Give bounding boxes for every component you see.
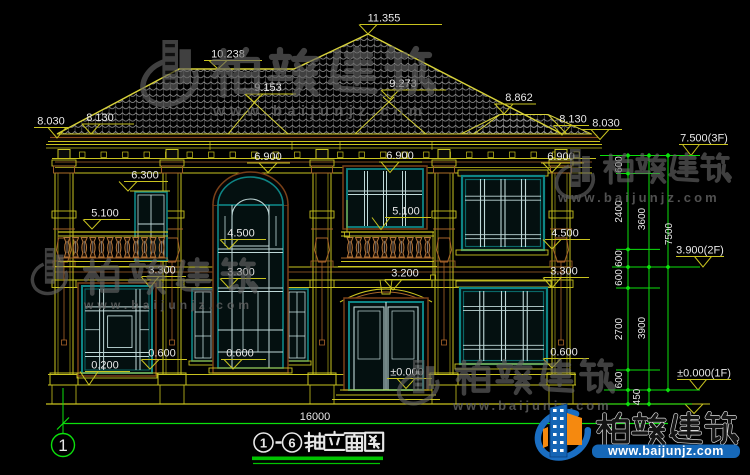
svg-text:7500: 7500 [664,222,675,245]
svg-text:8.130: 8.130 [559,114,587,126]
svg-text:www.baijunjz.com: www.baijunjz.com [452,398,612,413]
svg-text:5.100: 5.100 [392,206,420,218]
svg-text:4.500: 4.500 [227,228,255,240]
svg-text:8.862: 8.862 [505,92,533,104]
svg-text:1: 1 [58,436,67,455]
svg-text:2700: 2700 [614,317,625,340]
svg-text:8.030: 8.030 [37,116,65,128]
svg-text:3600: 3600 [637,207,648,230]
svg-text:www.baijunjz.com: www.baijunjz.com [557,190,720,205]
svg-text:0.200: 0.200 [91,360,119,372]
svg-text:±0.000(1F): ±0.000(1F) [677,368,731,380]
svg-text:4.500: 4.500 [551,228,579,240]
svg-text:www.baijunjz.com: www.baijunjz.com [607,444,724,458]
svg-text:8.130: 8.130 [86,112,114,124]
svg-text:6.300: 6.300 [131,170,159,182]
svg-text:7.500(3F): 7.500(3F) [680,133,728,145]
svg-text:8.030: 8.030 [592,118,620,130]
svg-text:6: 6 [288,436,295,451]
svg-text:www.baijunjz.com: www.baijunjz.com [212,103,427,120]
svg-text:3.900(2F): 3.900(2F) [676,245,724,257]
svg-text:1: 1 [260,436,267,451]
svg-text:6.900: 6.900 [386,150,414,162]
svg-text:3900: 3900 [637,316,648,339]
svg-text:11.355: 11.355 [368,13,401,25]
svg-text:600: 600 [614,371,625,388]
svg-text:600: 600 [614,269,625,286]
svg-text:5.100: 5.100 [91,208,119,220]
svg-text:0.600: 0.600 [226,348,254,360]
svg-text:600: 600 [614,250,625,267]
svg-text:0.600: 0.600 [550,347,578,359]
svg-text:0.600: 0.600 [148,348,176,360]
svg-text:3.200: 3.200 [391,268,419,280]
svg-text:6.900: 6.900 [254,151,282,163]
svg-text:16000: 16000 [300,411,331,423]
svg-text:www.baijunjz.com: www.baijunjz.com [83,298,253,312]
svg-text:3.300: 3.300 [550,266,578,278]
svg-text:450: 450 [632,388,643,405]
